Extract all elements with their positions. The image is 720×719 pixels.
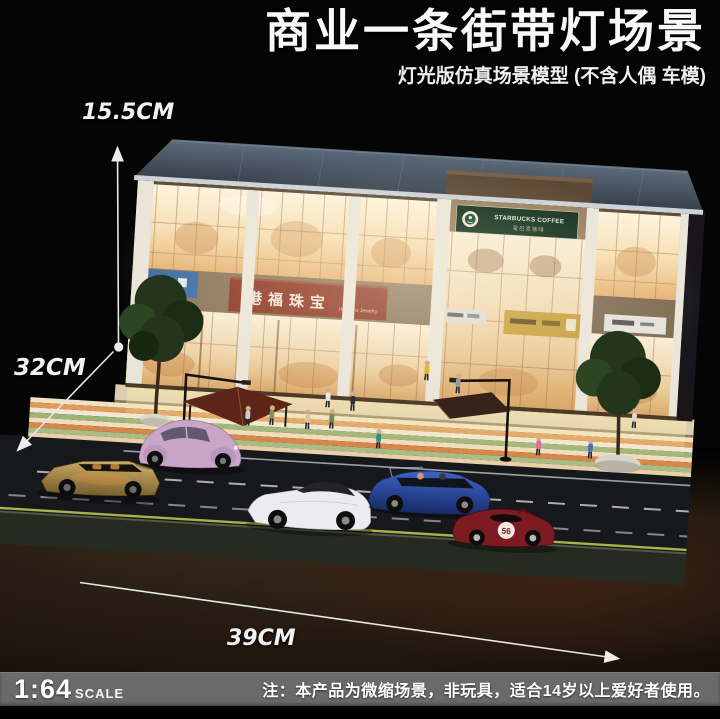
product-image: 港福珠宝 Hong Fu Jewelry [0,0,720,719]
scale-label: 1:64 SCALE [14,674,124,705]
height-dimension-label: 15.5CM [82,100,174,125]
depth-arrow-dot [114,342,123,351]
footer-bar: 1:64 SCALE 注：本产品为微缩场景，非玩具，适合14岁以上爱好者使用。 [0,672,720,706]
dimension-arrows [18,148,618,659]
scale-ratio: 1:64 [14,674,72,705]
depth-dimension-label: 32CM [14,355,86,381]
bottom-border [0,706,720,719]
scale-word: SCALE [75,686,124,701]
footer-note: 注：本产品为微缩场景，非玩具，适合14岁以上爱好者使用。 [262,677,710,701]
height-arrow [118,148,119,343]
page-subtitle: 灯光版仿真场景模型 (不含人偶 车模) [265,61,706,88]
width-arrow [80,583,618,659]
width-dimension-label: 39CM [227,626,296,651]
header: 商业一条街带灯场景 灯光版仿真场景模型 (不含人偶 车模) [265,6,706,88]
page-title: 商业一条街带灯场景 [265,6,706,58]
